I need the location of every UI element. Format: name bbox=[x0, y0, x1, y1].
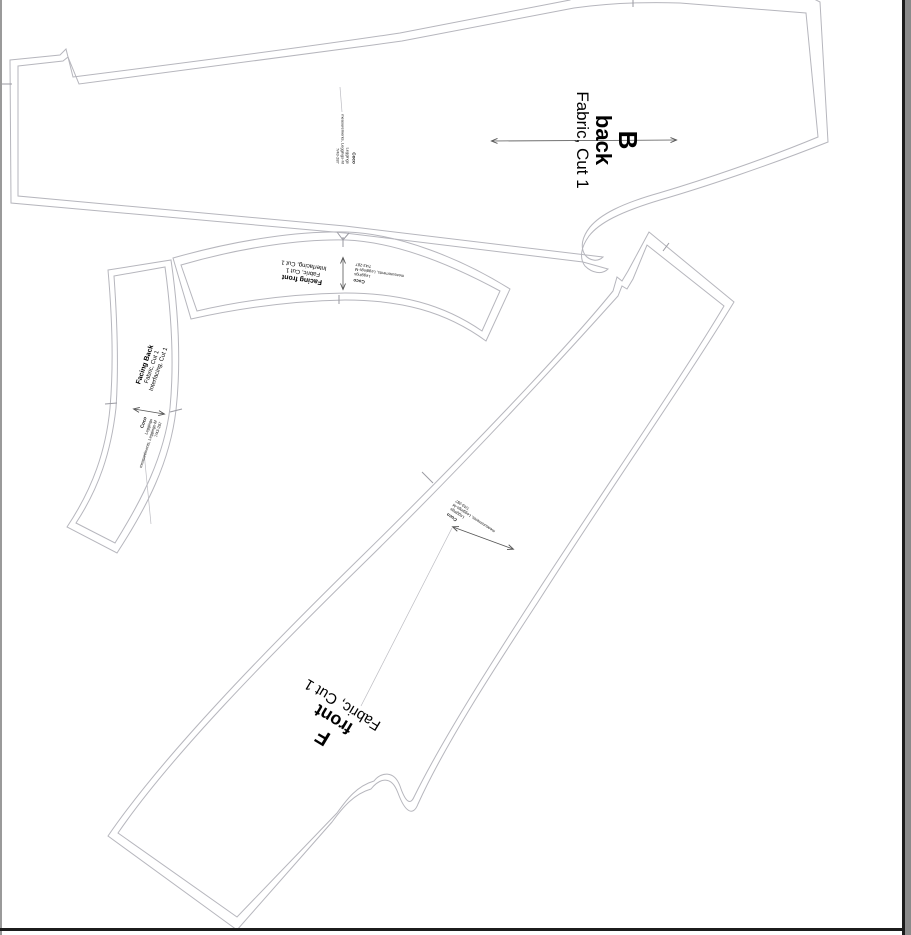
piece-front-notches bbox=[422, 243, 669, 483]
back-cut-info: Fabric, Cut 1 bbox=[573, 91, 591, 188]
page-edge-left bbox=[0, 0, 2, 935]
grainlines bbox=[134, 140, 676, 549]
page-edge-bottom bbox=[0, 928, 905, 931]
annotation-lines bbox=[144, 87, 452, 706]
back-letter: B bbox=[614, 91, 641, 188]
facing-front-seam-line bbox=[181, 240, 500, 331]
piece-facing-back-outline bbox=[67, 260, 179, 553]
facing-back-notch-left bbox=[105, 403, 117, 404]
pattern-outlines bbox=[0, 0, 911, 935]
front-seam-line bbox=[118, 245, 724, 917]
grainline-arrow-facing-back bbox=[134, 409, 164, 414]
piece-front-outline bbox=[108, 232, 734, 930]
piece-back-outline bbox=[10, 0, 828, 273]
piece-back-notches bbox=[0, 0, 633, 240]
stamp-brand: Coco bbox=[351, 114, 357, 164]
facing-back-cut-line bbox=[67, 260, 179, 553]
stamp-line2: Leggings bbox=[346, 114, 351, 164]
facing-back-seam-line bbox=[76, 267, 172, 543]
front-notch-side bbox=[422, 472, 433, 483]
viewer-gutter-right bbox=[905, 0, 911, 935]
back-name: back bbox=[591, 91, 614, 188]
leader-back-stamp bbox=[340, 87, 342, 112]
piece-facing-front-notches bbox=[339, 237, 343, 304]
back-cut-line bbox=[10, 0, 828, 273]
front-cut-line bbox=[108, 232, 734, 930]
stamp-line3: measurements, Leggings-M bbox=[341, 114, 346, 164]
sewing-pattern-page: { "stamp": { "brand": "Coco", "line2": "… bbox=[0, 0, 911, 935]
facing-front-cut-line bbox=[173, 232, 510, 341]
leader-front-stamp bbox=[361, 528, 452, 706]
back-seam-line bbox=[18, 3, 818, 261]
stamp-back-piece: Coco Leggings measurements, Leggings-M 7… bbox=[336, 114, 357, 164]
piece-facing-front-outline bbox=[173, 232, 510, 341]
label-back-piece: B back Fabric, Cut 1 bbox=[573, 91, 641, 188]
